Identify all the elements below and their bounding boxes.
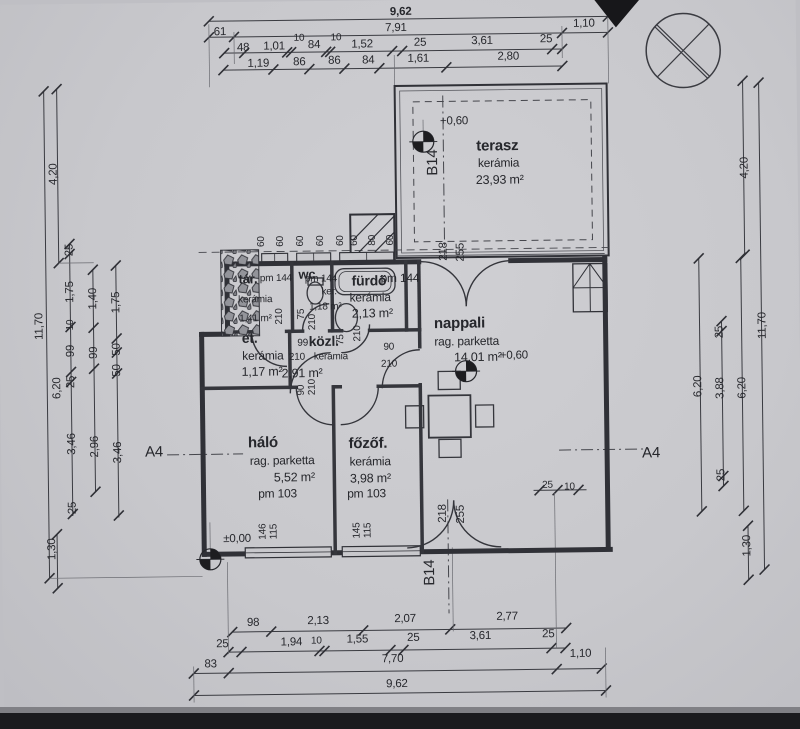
room-name-et: et. [242, 330, 258, 346]
dim-label: 60 [256, 236, 267, 247]
dim-label: 146 [257, 524, 268, 540]
dim-label: 255 [455, 505, 467, 524]
dim-label: 25 [64, 244, 76, 257]
room-finish: kerámia [349, 290, 390, 305]
dim-label: 90 [383, 342, 394, 353]
dim-label: 4,20 [738, 157, 750, 179]
dim-label: 6,20 [51, 377, 63, 399]
dim-label: 218 [437, 504, 449, 523]
room-name-halo: háló [248, 434, 278, 451]
room-name-nappali: nappali [434, 314, 485, 332]
section-marker-a4-right: A4 [642, 444, 660, 461]
room-finish: kerámia [314, 351, 348, 362]
dim-label: 210 [307, 314, 318, 330]
room-finish: rag. parketta [250, 453, 315, 468]
dim-label: 98 [247, 617, 260, 629]
room-finish: rag. parketta [434, 334, 499, 349]
dim-label: 9,62 [386, 678, 408, 690]
dim-label: 1,61 [407, 53, 429, 65]
dim-label: 90 [296, 385, 307, 396]
room-finish: kerámia [349, 454, 390, 469]
dim-label: 210 [274, 308, 285, 324]
dimension-ticks [38, 10, 771, 703]
dim-label: 1,19 [247, 58, 269, 70]
dim-label: 50 [111, 343, 123, 356]
room-pm: pm 144 [260, 273, 292, 284]
dim-label: 86 [328, 55, 341, 67]
dim-label: 1,55 [346, 633, 368, 645]
dim-label: 210 [352, 325, 363, 341]
dim-label: 80 [367, 235, 378, 246]
dim-label: 115 [268, 524, 279, 539]
room-name-kozl: közl. [309, 333, 339, 349]
dim-label: 11,70 [33, 313, 45, 340]
dim-label: 1,40 [87, 288, 99, 310]
dim-label: 6,20 [736, 377, 748, 399]
dim-label: 60 [349, 235, 360, 246]
photo-edge-band [0, 713, 800, 729]
dim-label: 210 [307, 379, 318, 395]
dim-label: 25 [67, 502, 79, 515]
section-marker-a4-left: A4 [145, 443, 163, 460]
dim-label: 2,77 [496, 611, 518, 623]
dim-label: 99 [88, 346, 100, 359]
dim-label: 61 [214, 26, 227, 38]
dim-label: 7,70 [382, 653, 404, 665]
dim-label: 83 [204, 658, 217, 670]
dim-label: 210 [289, 352, 305, 363]
dim-label: 3,46 [66, 433, 78, 455]
dim-label: 84 [308, 39, 321, 51]
dim-label: 48 [237, 42, 250, 54]
dim-label: 75 [296, 309, 307, 320]
drawing-sheet: 9,62 61 7,91 1,10 48 1,01 10 84 10 1,52 … [0, 0, 800, 729]
dim-label: 60 [315, 236, 326, 247]
dim-label: 25 [540, 33, 553, 45]
dim-label: 25 [542, 480, 553, 491]
dim-label: 60 [385, 235, 396, 246]
room-pm: pm 103 [258, 486, 297, 500]
dim-label: 99 [297, 338, 308, 349]
dim-label: 25 [407, 632, 420, 644]
dim-label: 1,01 [263, 40, 285, 52]
room-area: 14,01 m² [454, 350, 502, 365]
dim-label: 210 [381, 359, 397, 370]
dim-label: 25 [715, 469, 727, 482]
room-pm: pm 144 [305, 273, 337, 284]
north-symbol [646, 13, 721, 88]
dim-label: 84 [362, 54, 375, 66]
dim-label: 86 [293, 56, 306, 68]
room-finish: ker. [321, 286, 336, 297]
room-area: 1,41 m² [239, 313, 272, 324]
dim-label: 3,88 [714, 377, 726, 399]
section-marker-b14-bottom: B14 [421, 560, 438, 586]
dim-label: 3,61 [469, 630, 491, 642]
room-finish: kerámia [238, 294, 272, 305]
level-label-terrace: +0,60 [440, 115, 468, 127]
dim-label: 218 [438, 242, 450, 261]
dim-label: 3,46 [112, 442, 124, 464]
dim-label: 25 [414, 37, 427, 49]
dim-label: 10 [294, 33, 305, 44]
room-pm: pm 103 [347, 486, 386, 500]
room-area: 5,52 m² [274, 470, 315, 484]
dim-label: 11,70 [756, 312, 768, 339]
dim-label: 6,20 [692, 375, 704, 397]
room-name-tar: tár. [238, 271, 257, 286]
dim-label: 10 [564, 481, 575, 492]
dim-label: 1,52 [351, 38, 373, 50]
room-finish: kerámia [242, 348, 283, 363]
room-area: 23,93 m² [476, 172, 524, 187]
dim-label: 255 [455, 243, 467, 262]
floor-plan-photo: 9,62 61 7,91 1,10 48 1,01 10 84 10 1,52 … [0, 0, 800, 729]
dim-label: 1,75 [64, 281, 76, 303]
dim-label: 2,80 [497, 51, 519, 63]
dim-label: 4,20 [48, 163, 60, 185]
dim-label: 3,61 [471, 35, 493, 47]
room-area: 1,18 m² [309, 301, 342, 312]
room-name-fozof: főzőf. [348, 435, 387, 452]
room-area: 1,17 m² [242, 364, 283, 378]
dim-label: 60 [295, 236, 306, 247]
dim-label: 10 [311, 635, 322, 646]
room-pm: pm 144 [380, 271, 419, 285]
dim-label: 2,07 [394, 613, 416, 625]
dim-label: 9,62 [390, 6, 412, 18]
dim-label: 25 [714, 326, 726, 339]
dim-label: 50 [111, 364, 123, 377]
dim-label: 10 [65, 320, 76, 331]
dim-label: 1,94 [281, 636, 303, 648]
level-label-nappali: +0,60 [500, 349, 528, 361]
level-label-zero: ±0,00 [223, 533, 251, 545]
dim-label: 10 [331, 32, 342, 43]
room-finish: kerámia [478, 156, 519, 171]
dim-label: 60 [335, 235, 346, 246]
dim-label: 2,13 [307, 615, 329, 627]
dim-label: 25 [65, 376, 77, 389]
room-name-terasz: terasz [476, 137, 518, 155]
room-area: 2,13 m² [352, 306, 393, 320]
dim-label: 25 [542, 628, 555, 640]
dim-label: 60 [275, 236, 286, 247]
dim-label: 1,30 [46, 538, 58, 560]
dim-label: 115 [362, 523, 373, 538]
room-area: 2,91 m² [282, 366, 323, 380]
dim-label: 1,10 [570, 648, 592, 660]
dim-label: 1,10 [573, 18, 595, 30]
dimension-lines [43, 15, 766, 698]
photo-corner-mark [593, 0, 642, 28]
eaves-dashed-line [199, 247, 609, 252]
dim-label: 2,96 [89, 436, 101, 458]
dim-label: 99 [65, 345, 77, 358]
room-area: 3,98 m² [350, 471, 391, 485]
dim-label: 25 [216, 638, 229, 650]
dim-label: 145 [351, 522, 362, 538]
dim-label: 7,91 [385, 22, 407, 34]
dim-label: 1,75 [110, 292, 122, 314]
dim-label: 1,30 [741, 535, 753, 557]
section-marker-b14-top: B14 [424, 149, 441, 175]
